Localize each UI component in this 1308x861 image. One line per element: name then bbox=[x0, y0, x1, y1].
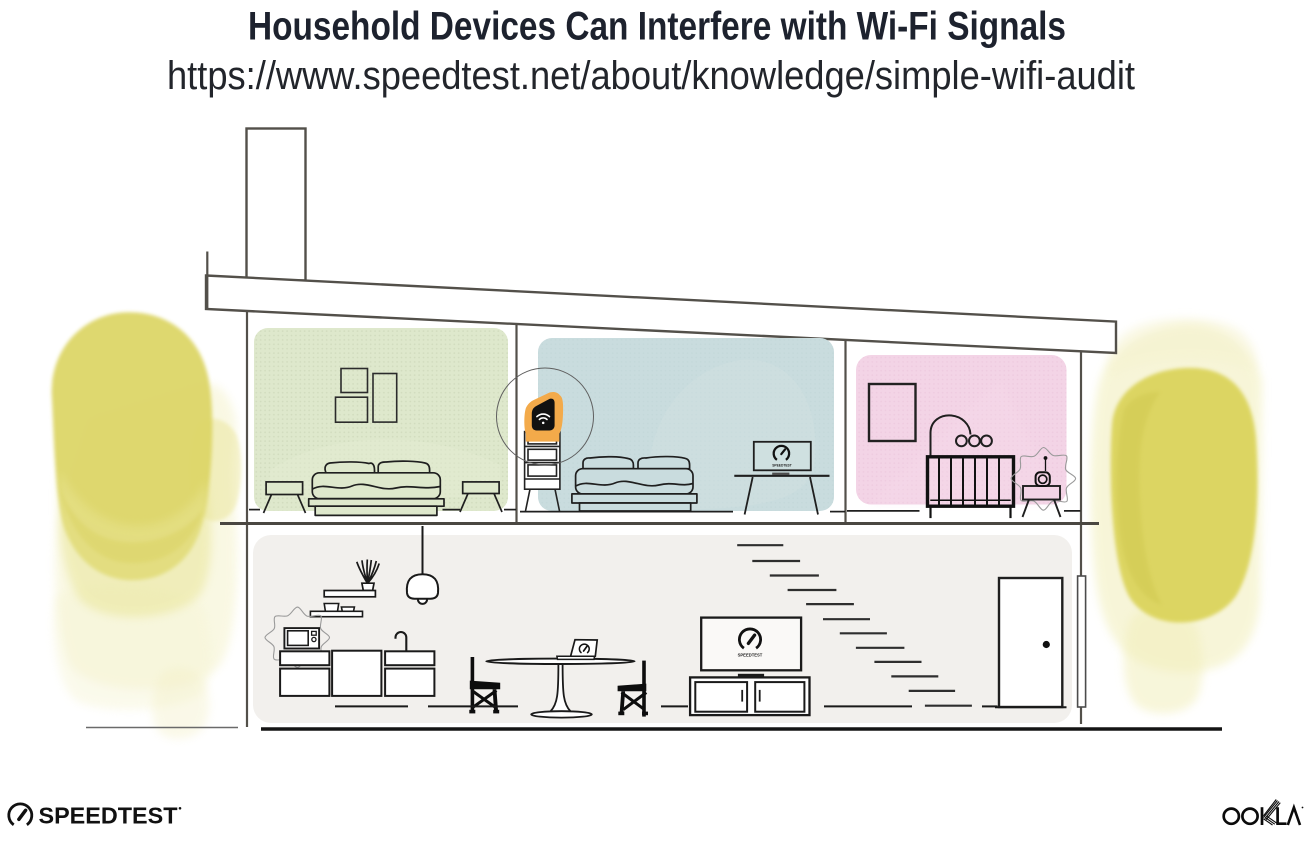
svg-text:https://www.speedtest.net/abou: https://www.speedtest.net/about/knowledg… bbox=[167, 54, 1135, 98]
svg-text:SPEEDTEST: SPEEDTEST bbox=[738, 653, 763, 658]
svg-text:SPEEDTEST: SPEEDTEST bbox=[772, 464, 792, 468]
svg-text:SPEEDTEST: SPEEDTEST bbox=[39, 802, 179, 828]
svg-text:Household Devices Can Interfer: Household Devices Can Interfere with Wi-… bbox=[248, 5, 1066, 49]
